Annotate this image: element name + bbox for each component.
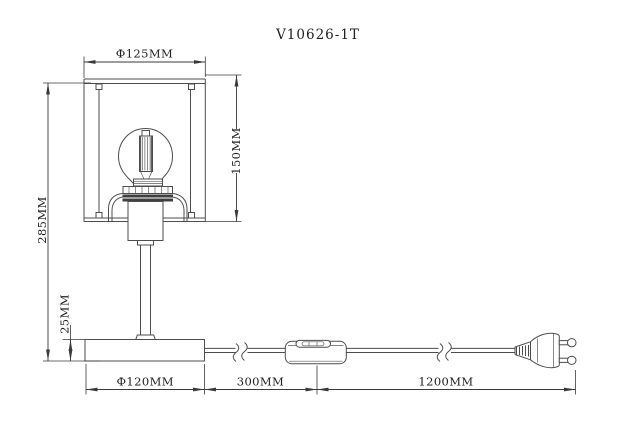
dim-base-diameter: Ф120MM: [86, 364, 205, 395]
dim-base-height: 25MM: [58, 294, 86, 361]
bulb-cap: [134, 179, 163, 186]
strain-relief: [515, 342, 531, 360]
shade-diameter-label: Ф125MM: [116, 47, 173, 61]
bulb-glass: [119, 129, 173, 184]
page-title: V10626-1T: [275, 27, 360, 43]
switch-distance-label: 300MM: [237, 375, 285, 389]
plug-prongs: [559, 339, 576, 365]
base-height-label: 25MM: [58, 294, 72, 334]
base-diameter-label: Ф120MM: [116, 375, 173, 389]
cord-length-label: 1200MM: [418, 375, 473, 389]
switch-button: [296, 340, 331, 347]
total-height-label: 285MM: [35, 196, 49, 244]
dim-switch-distance: 300MM: [205, 366, 318, 395]
dim-cord-length: 1200MM: [317, 370, 576, 395]
light-bulb: [119, 129, 173, 187]
drawing-canvas: Ф125MM 150MM 285MM 25MM Ф120MM 300MM 120…: [0, 0, 630, 445]
dim-shade-height: 150MM: [205, 75, 243, 222]
power-plug: [515, 333, 576, 367]
socket-housing: [128, 202, 163, 241]
bulb-socket: [123, 187, 174, 246]
inline-switch: [285, 340, 346, 363]
lamp-base: [85, 340, 205, 362]
dim-shade-diameter: Ф125MM: [84, 47, 205, 79]
lamp-technical-drawing: Ф125MM 150MM 285MM 25MM Ф120MM 300MM 120…: [0, 0, 630, 445]
power-cord: [205, 348, 516, 352]
lamp-stem: [136, 245, 155, 340]
shade-height-label: 150MM: [229, 127, 243, 175]
plug-body: [531, 333, 560, 367]
